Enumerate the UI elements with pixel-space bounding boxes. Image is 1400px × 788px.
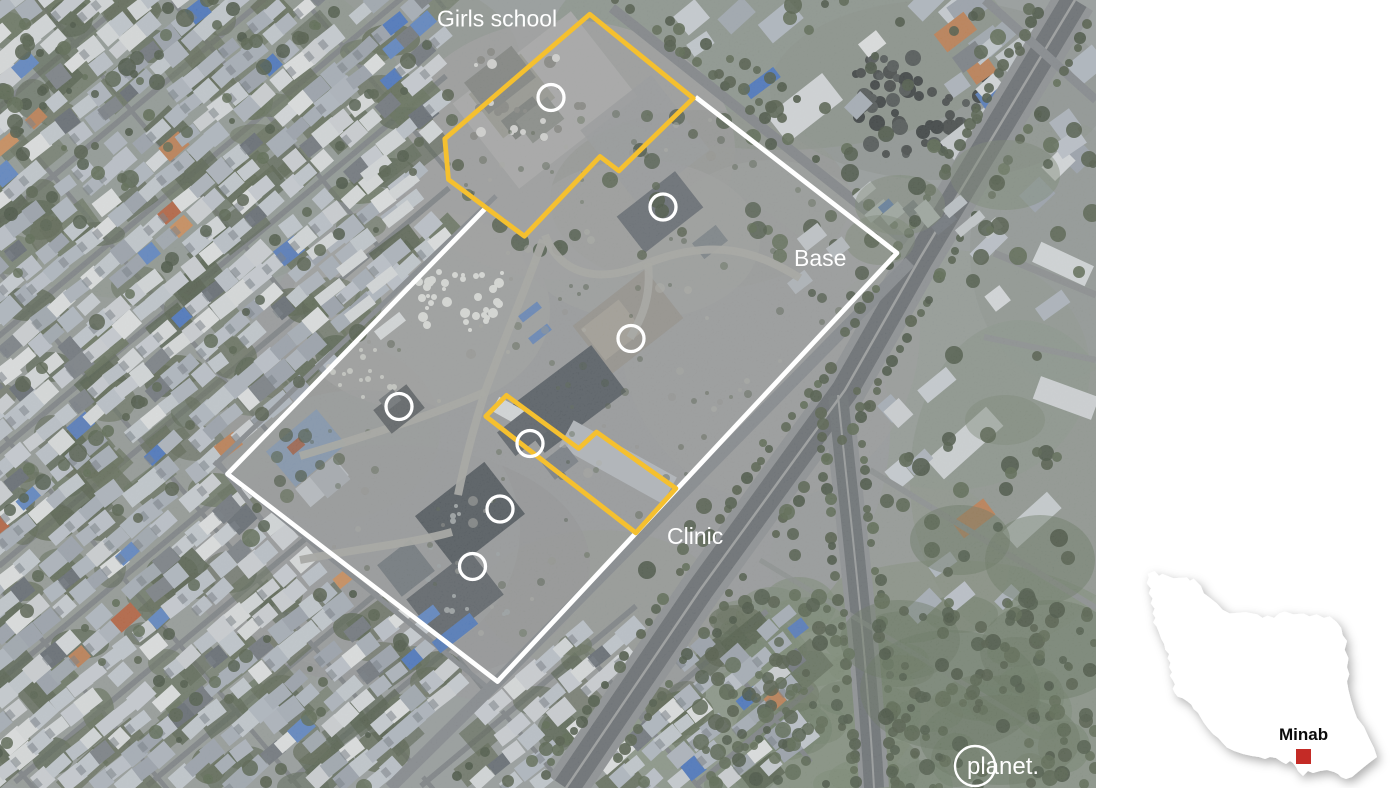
svg-text:Clinic: Clinic	[667, 523, 723, 549]
svg-text:Minab: Minab	[1279, 725, 1328, 744]
svg-text:planet.: planet.	[967, 753, 1039, 780]
svg-text:Girls school: Girls school	[437, 6, 557, 32]
svg-text:Base: Base	[794, 245, 846, 271]
